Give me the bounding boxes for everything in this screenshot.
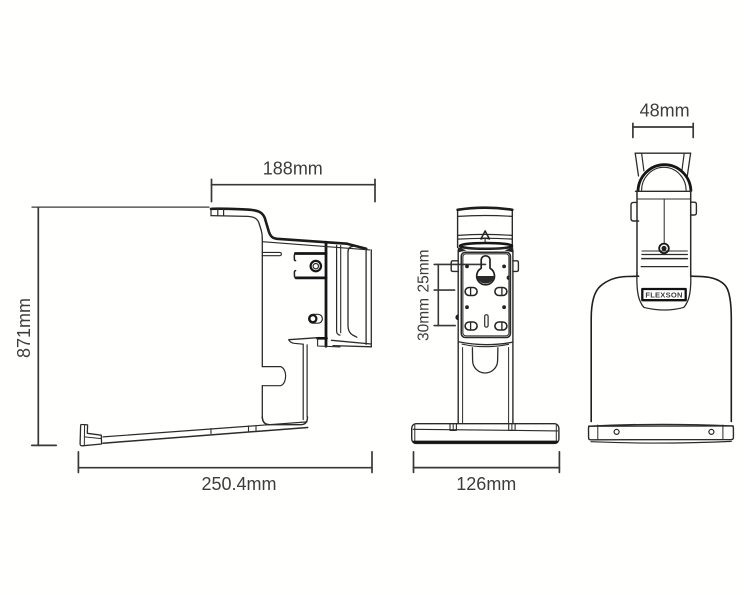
svg-text:48mm: 48mm: [640, 101, 690, 121]
svg-text:FLEXSON: FLEXSON: [645, 291, 682, 300]
svg-text:30mm: 30mm: [415, 298, 432, 341]
svg-text:25mm: 25mm: [415, 249, 432, 292]
svg-text:871mm: 871mm: [14, 298, 34, 358]
svg-text:126mm: 126mm: [456, 474, 516, 494]
svg-text:250.4mm: 250.4mm: [201, 474, 276, 494]
svg-text:188mm: 188mm: [263, 159, 323, 179]
